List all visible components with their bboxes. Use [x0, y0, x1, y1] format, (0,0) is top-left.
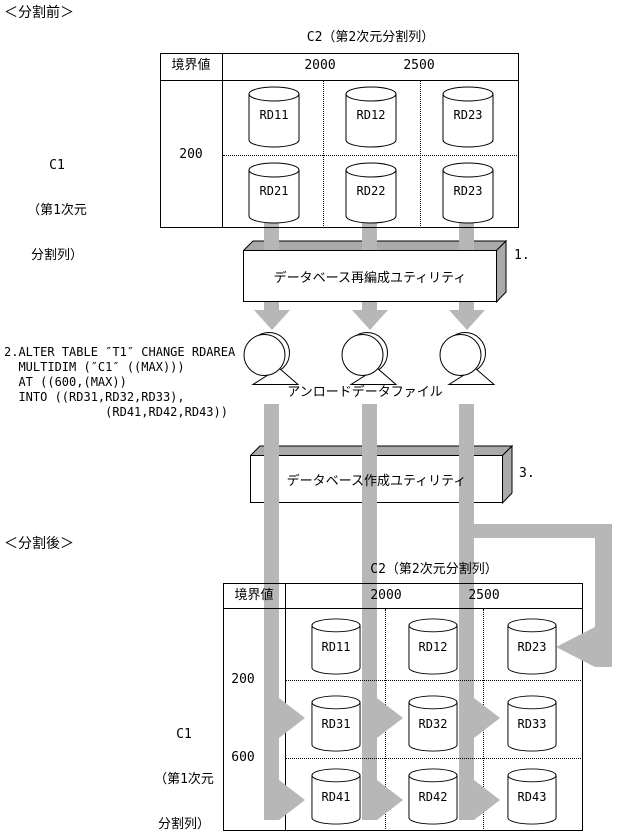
- rdarea-cylinder: RD43: [507, 768, 557, 825]
- before-table-header-divider: [160, 80, 519, 81]
- c1-label-line: 分割列）: [16, 248, 98, 263]
- tape-file-icon: [436, 332, 496, 390]
- rdarea-name: RD32: [408, 717, 458, 731]
- after-section-title: ＜分割後＞: [4, 537, 74, 551]
- rdarea-cylinder: RD11: [311, 618, 361, 675]
- down-arrow-icon-1: [254, 310, 290, 330]
- right-arrow-icon-rd43: [474, 780, 500, 820]
- right-arrow-icon-rd42: [377, 780, 403, 820]
- before-section-title: ＜分割前＞: [4, 6, 74, 20]
- rdarea-name: RD41: [311, 790, 361, 804]
- rdarea-name: RD33: [507, 717, 557, 731]
- after-table-c2-boundary-2500: 2500: [454, 589, 514, 603]
- before-table-boundary-header: 境界値: [160, 59, 222, 73]
- rdarea-name: RD42: [408, 790, 458, 804]
- step-1-number: 1.: [514, 249, 530, 263]
- after-table-header-divider: [223, 608, 583, 609]
- after-table-boundary-header: 境界値: [223, 589, 285, 603]
- rdarea-name: RD23: [442, 184, 494, 198]
- rdarea-name: RD12: [408, 640, 458, 654]
- rdarea-cylinder: RD41: [311, 768, 361, 825]
- right-arrow-icon-rd41: [279, 780, 305, 820]
- before-table-c1-boundary-200: 200: [166, 148, 216, 162]
- down-arrow-icon-3: [449, 310, 485, 330]
- after-table-c1-boundary-600: 600: [218, 751, 268, 765]
- branch-band-horizontal: [459, 524, 612, 538]
- branch-band-vertical: [595, 524, 612, 667]
- rdarea-cylinder: RD23: [442, 162, 494, 224]
- tape-file-icon: [240, 332, 300, 390]
- right-arrow-icon-rd31: [279, 698, 305, 738]
- right-arrow-icon-rd33: [474, 698, 500, 738]
- c1-label-line: C1: [16, 158, 98, 173]
- reorg-utility-label: データベース再編成ユティリティ: [243, 250, 497, 302]
- rdarea-cylinder: RD32: [408, 695, 458, 752]
- rdarea-name: RD12: [345, 108, 397, 122]
- unload-file: [436, 332, 496, 394]
- rdarea-cylinder: RD22: [345, 162, 397, 224]
- rdarea-name: RD31: [311, 717, 361, 731]
- rdarea-cylinder: RD31: [311, 695, 361, 752]
- create-utility-label: データベース作成ユティリティ: [250, 455, 503, 503]
- step-3-number: 3.: [519, 467, 535, 481]
- sql-line: (RD41,RD42,RD43)): [4, 405, 235, 420]
- rdarea-name: RD23: [442, 108, 494, 122]
- rdarea-cylinder: RD23: [442, 86, 494, 148]
- rdarea-cylinder: RD11: [248, 86, 300, 148]
- rdarea-name: RD11: [311, 640, 361, 654]
- rdarea-cylinder: RD23: [507, 618, 557, 675]
- after-table-c1-label: C1 （第1次元 分割列）: [147, 697, 221, 839]
- left-arrow-icon-rd23: [556, 627, 595, 667]
- c1-label-line: （第1次元: [147, 772, 221, 787]
- after-table-dotted-row-1: [286, 680, 583, 681]
- before-table-c1-label: C1 （第1次元 分割列）: [16, 128, 98, 293]
- before-table-c2-header: C2（第2次元分割列）: [222, 31, 519, 45]
- c1-label-line: （第1次元: [16, 203, 98, 218]
- after-table-c2-boundary-2000: 2000: [356, 589, 416, 603]
- rdarea-name: RD21: [248, 184, 300, 198]
- tape-file-icon: [338, 332, 398, 390]
- alter-table-sql-block: 2.ALTER TABLE ″T1″ CHANGE RDAREA MULTIDI…: [4, 345, 235, 420]
- before-table-dotted-row: [223, 155, 519, 156]
- after-table-dotted-row-2: [286, 758, 583, 759]
- before-table-c2-boundary-2500: 2500: [389, 59, 449, 73]
- rdarea-name: RD11: [248, 108, 300, 122]
- diagram-canvas: ＜分割前＞ ＜分割後＞ C2（第2次元分割列） 境界値 2000 2500 20…: [0, 0, 619, 839]
- right-arrow-icon-rd32: [377, 698, 403, 738]
- rdarea-name: RD22: [345, 184, 397, 198]
- unload-file-label: アンロードデータファイル: [265, 386, 465, 400]
- sql-line: 2.ALTER TABLE ″T1″ CHANGE RDAREA: [4, 345, 235, 360]
- c1-label-line: 分割列）: [147, 817, 221, 832]
- sql-line: AT ((600,(MAX)): [4, 375, 235, 390]
- rdarea-cylinder: RD42: [408, 768, 458, 825]
- down-arrow-icon-2: [352, 310, 388, 330]
- after-table-c2-header: C2（第2次元分割列）: [285, 563, 583, 577]
- rdarea-cylinder: RD33: [507, 695, 557, 752]
- rdarea-name: RD43: [507, 790, 557, 804]
- after-table-c1-boundary-200: 200: [218, 673, 268, 687]
- before-table-c2-boundary-2000: 2000: [290, 59, 350, 73]
- rdarea-cylinder: RD12: [345, 86, 397, 148]
- rdarea-name: RD23: [507, 640, 557, 654]
- sql-line: MULTIDIM (″C1″ ((MAX))): [4, 360, 235, 375]
- sql-line: INTO ((RD31,RD32,RD33),: [4, 390, 235, 405]
- c1-label-line: C1: [147, 727, 221, 742]
- rdarea-cylinder: RD21: [248, 162, 300, 224]
- rdarea-cylinder: RD12: [408, 618, 458, 675]
